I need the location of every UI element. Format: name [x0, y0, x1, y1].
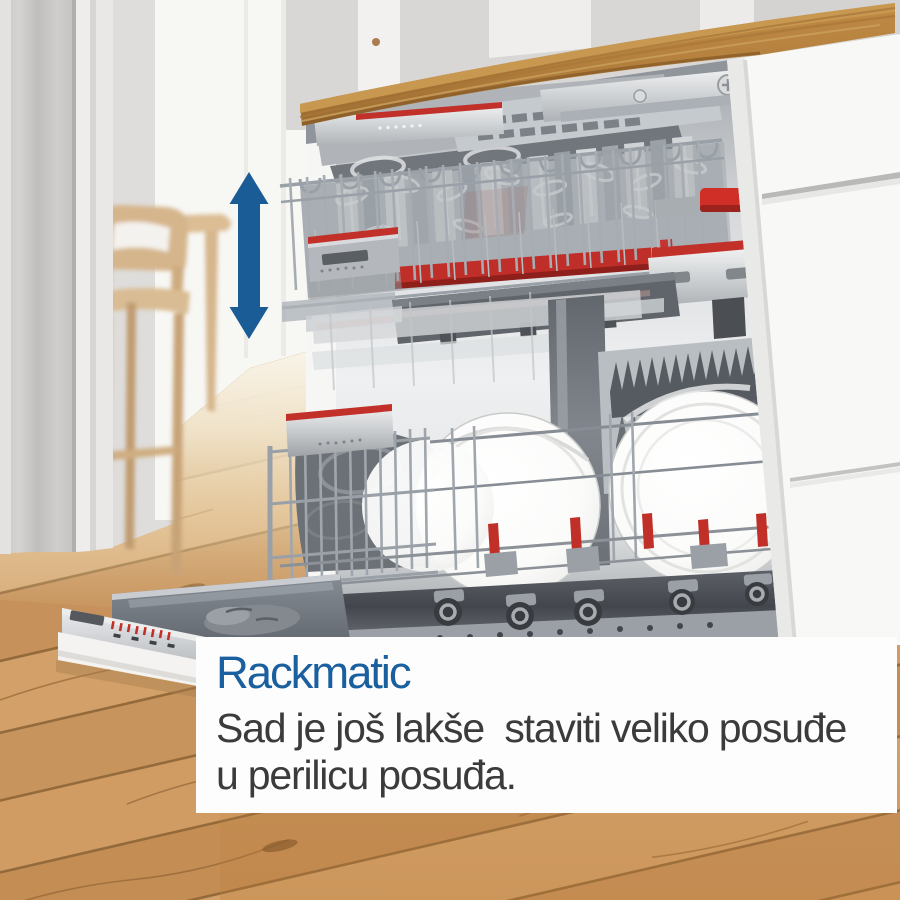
svg-text:Rackmatic: Rackmatic [216, 647, 411, 698]
svg-text:u perilicu posuđa.: u perilicu posuđa. [216, 752, 516, 798]
svg-text:Sad je još lakše staviti veli: Sad je još lakše staviti veliko posuđe [216, 705, 846, 751]
